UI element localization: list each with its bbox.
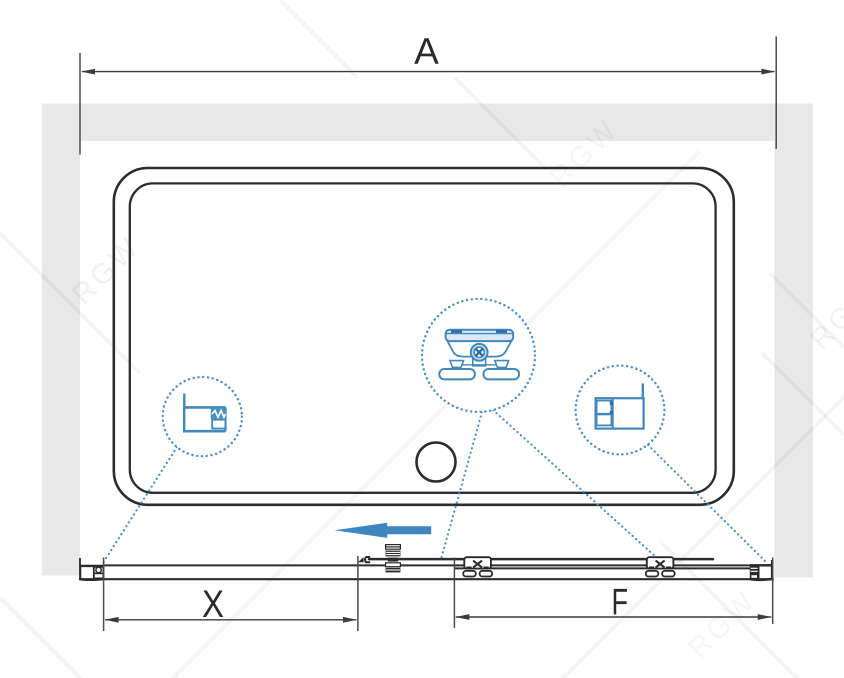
svg-text:A: A	[414, 31, 439, 72]
svg-text:F: F	[612, 581, 629, 622]
svg-text:X: X	[202, 583, 224, 626]
